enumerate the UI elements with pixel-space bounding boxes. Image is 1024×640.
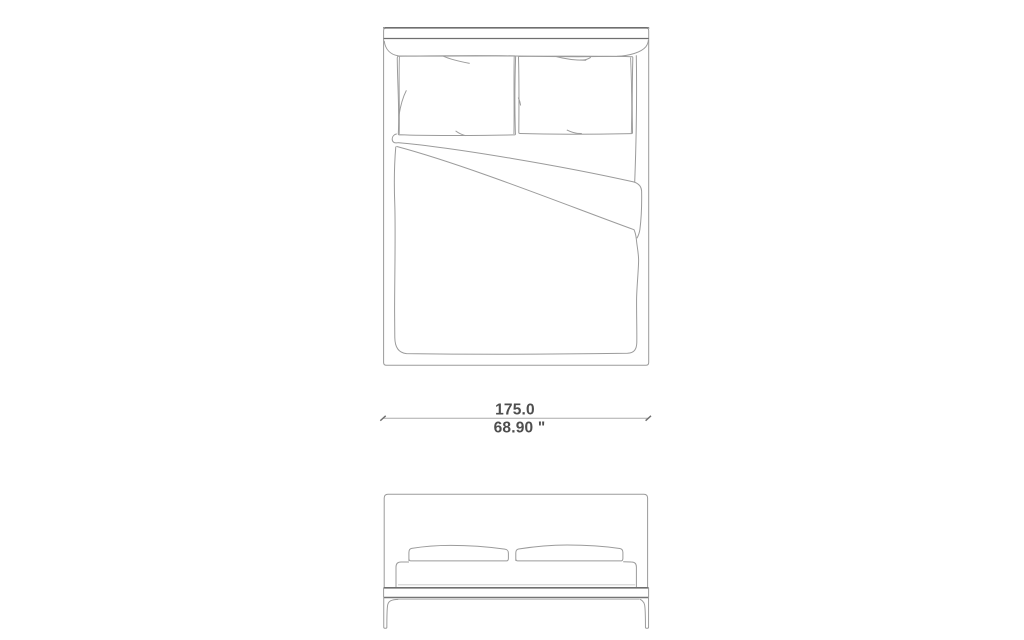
svg-text:68.90 ": 68.90 "	[494, 419, 546, 436]
svg-text:175.0: 175.0	[495, 401, 535, 418]
